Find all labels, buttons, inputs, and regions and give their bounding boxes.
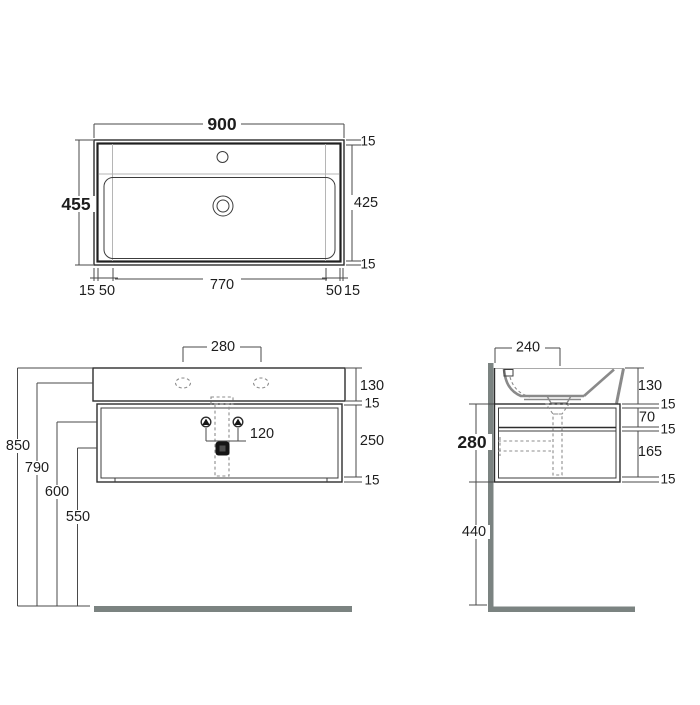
dim-label-bottom-left-rim: 15	[79, 283, 95, 299]
trap-hidden-funnel	[546, 404, 569, 414]
dim-label-top-panel: 15	[364, 396, 379, 411]
dim-label-bottom-panel: 15	[660, 472, 675, 487]
floor-bar	[488, 607, 635, 613]
basin-bowl-front-slope	[584, 370, 614, 397]
dim-label-drawer-front: 250	[360, 433, 384, 449]
plan-view: 900 455 15 425 15 15 50 770 50 15	[58, 114, 381, 299]
dim-label-basin-height: 130	[360, 378, 384, 394]
tap-hole	[217, 152, 228, 163]
floor-bar	[94, 606, 352, 612]
basin-bowl-profile	[504, 369, 584, 396]
dim-label-height-trap: 550	[66, 509, 90, 525]
drawing-canvas: 900 455 15 425 15 15 50 770 50 15	[0, 0, 700, 700]
dim-label-drain-from-wall: 240	[516, 340, 540, 356]
dim-label-bottom-panel: 15	[364, 473, 379, 488]
trap-hidden-pipe	[553, 414, 562, 475]
dim-label-depth: 455	[61, 194, 90, 214]
overflow-hidden-channel	[510, 377, 530, 397]
technical-drawing-page: 900 455 15 425 15 15 50 770 50 15	[0, 0, 700, 700]
dim-label-rim-top: 15	[360, 134, 375, 149]
drain-outer	[213, 196, 233, 216]
front-elevation: 280 120 130 15 250 15	[3, 339, 384, 612]
dim-label-height-total: 850	[6, 438, 30, 454]
dim-label-upper-gap: 70	[639, 410, 655, 426]
dim-label-basin-height: 130	[638, 378, 662, 394]
dim-label-drawer-depth: 165	[638, 444, 662, 460]
basin-outer-edge	[94, 140, 344, 265]
dim-label-shelf: 15	[660, 422, 675, 437]
fixing-bolt-right-arrow	[234, 419, 242, 425]
cabinet-side-inner-panel	[499, 408, 617, 478]
drain-fitting-centre	[220, 446, 226, 452]
dim-label-height-rim: 790	[25, 460, 49, 476]
side-section: 240 280 440 130 15 70 15 165 15	[455, 340, 676, 613]
dim-label-bottom-right-rim: 15	[344, 283, 360, 299]
fixing-bolt-left-arrow	[202, 419, 210, 425]
dim-label-bottom-right-offset: 50	[326, 283, 342, 299]
dim-label-width: 900	[207, 114, 236, 134]
washbasin-front-outline	[93, 368, 345, 401]
basin-front-face	[617, 369, 624, 404]
dim-label-top-panel: 15	[660, 397, 675, 412]
dim-label-floor-clearance: 440	[462, 524, 486, 540]
drain-hidden-pipe	[215, 404, 229, 476]
cabinet-side-outline	[495, 404, 621, 482]
dim-label-cabinet-height: 280	[457, 432, 486, 452]
dim-label-tap-centres: 280	[211, 339, 235, 355]
basin-bowl-outline	[104, 178, 335, 259]
dim-label-bolt-centres: 120	[250, 426, 274, 442]
dim-label-bottom-left-offset: 50	[99, 283, 115, 299]
drain-inner	[217, 200, 229, 212]
dim-label-height-bolts: 600	[45, 484, 69, 500]
wall-bar	[488, 363, 494, 612]
tap-hole-left-hidden	[176, 378, 191, 388]
dim-label-bottom-inner-width: 770	[210, 277, 234, 293]
tap-hole-right-hidden	[254, 378, 269, 388]
dim-label-rim-bottom: 15	[360, 257, 375, 272]
dim-label-inner-depth: 425	[354, 195, 378, 211]
